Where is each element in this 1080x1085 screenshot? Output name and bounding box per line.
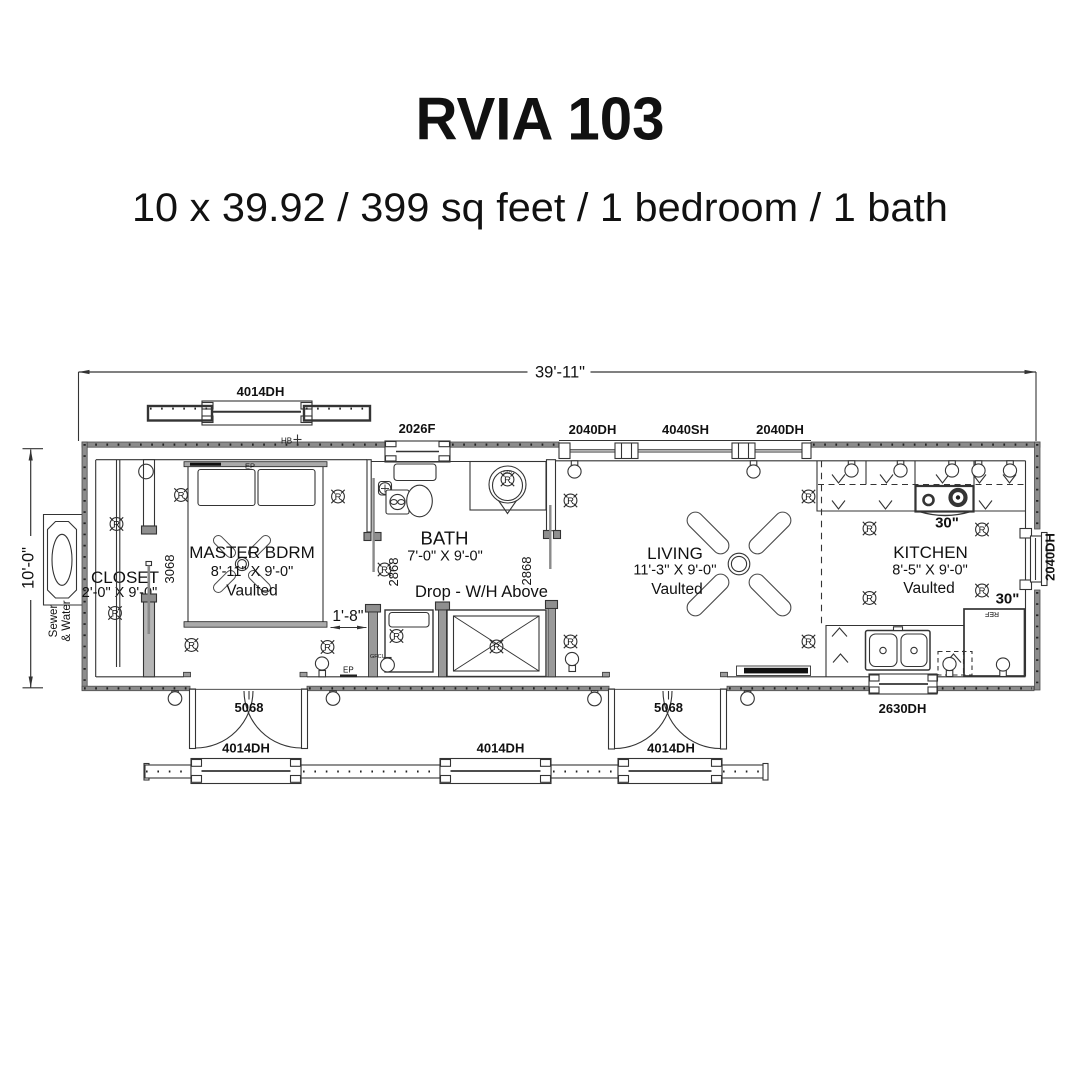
svg-text:4014DH: 4014DH	[477, 741, 525, 756]
svg-text:10 x 39.92 / 399 sq feet / 1 b: 10 x 39.92 / 399 sq feet / 1 bedroom / 1…	[132, 186, 948, 230]
svg-text:4014DH: 4014DH	[237, 384, 285, 399]
svg-text:2040DH: 2040DH	[756, 422, 804, 437]
svg-text:8'-11" X 9'-0": 8'-11" X 9'-0"	[211, 564, 293, 580]
svg-text:8'-5" X 9'-0": 8'-5" X 9'-0"	[892, 563, 967, 579]
svg-text:4040SH: 4040SH	[662, 422, 709, 437]
svg-text:11'-3'' X 9'-0'': 11'-3'' X 9'-0''	[633, 563, 716, 579]
svg-text:39'-11": 39'-11"	[535, 364, 585, 382]
svg-text:Vaulted: Vaulted	[226, 583, 277, 600]
svg-text:3068: 3068	[162, 555, 177, 584]
svg-text:BATH: BATH	[421, 528, 469, 549]
svg-text:EP: EP	[343, 666, 354, 675]
svg-text:GFCI: GFCI	[370, 654, 384, 660]
svg-text:KITCHEN: KITCHEN	[893, 543, 968, 562]
svg-text:LIVING: LIVING	[647, 544, 703, 563]
svg-text:RVIA 103: RVIA 103	[416, 86, 665, 153]
svg-text:2868: 2868	[386, 558, 401, 587]
svg-text:2630DH: 2630DH	[879, 701, 927, 716]
svg-text:7'-0" X 9'-0": 7'-0" X 9'-0"	[407, 549, 482, 565]
svg-text:HB: HB	[281, 437, 292, 446]
svg-text:REF: REF	[985, 610, 999, 617]
svg-text:& Water: & Water	[61, 600, 73, 641]
svg-text:4014DH: 4014DH	[647, 741, 695, 756]
svg-text:5068: 5068	[654, 700, 683, 715]
svg-text:MASTER BDRM: MASTER BDRM	[189, 543, 315, 562]
svg-text:2026F: 2026F	[399, 421, 436, 436]
svg-text:1'-8'': 1'-8''	[332, 608, 363, 625]
svg-text:4014DH: 4014DH	[222, 741, 270, 756]
svg-text:Vaulted: Vaulted	[903, 580, 954, 597]
svg-text:2040DH: 2040DH	[1043, 533, 1058, 581]
svg-text:Vaulted: Vaulted	[651, 581, 702, 598]
svg-text:5068: 5068	[235, 700, 264, 715]
svg-text:2868: 2868	[519, 557, 534, 586]
svg-text:2040DH: 2040DH	[569, 422, 617, 437]
svg-text:30": 30"	[935, 515, 959, 532]
svg-text:Sewer: Sewer	[48, 605, 60, 638]
svg-text:30": 30"	[996, 591, 1020, 608]
svg-text:10'-0": 10'-0"	[20, 547, 38, 589]
